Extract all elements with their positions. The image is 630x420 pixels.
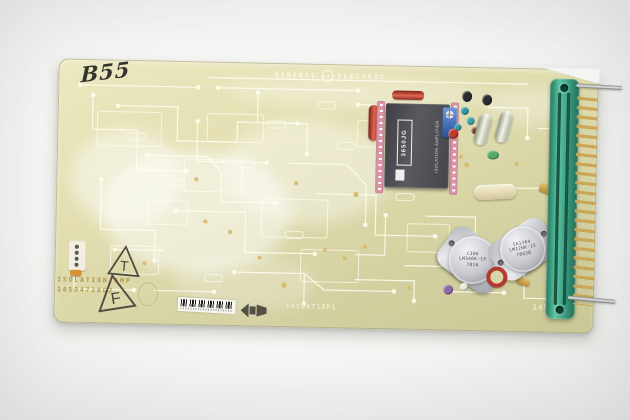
connector-screw-hole-bottom [556, 306, 564, 314]
silkscreen-part-number: 145D4718P1 [286, 302, 337, 311]
power-resistor [474, 184, 517, 201]
red-capacitor-horizontal [392, 90, 424, 100]
green-bead [487, 150, 499, 159]
pcb-substrate: B55 GENERAL GE ELECTRIC ISOLATION AMP 14… [53, 58, 598, 333]
ink-stamp [237, 299, 271, 322]
ge-monogram-icon: GE [321, 70, 333, 82]
dip-component [68, 241, 86, 271]
f-stamp: F [91, 269, 139, 317]
photo-backdrop: B55 GENERAL GE ELECTRIC ISOLATION AMP 14… [0, 0, 630, 420]
module-part-number: 3650JG [397, 119, 413, 165]
brand-text: GENERAL GE ELECTRIC [274, 69, 386, 83]
orange-jumper [70, 270, 81, 276]
brand-word-general: GENERAL [274, 71, 317, 80]
connector-screw-hole-top [560, 84, 568, 92]
f-stamp-letter: F [110, 290, 122, 308]
trimpot-screw [446, 110, 454, 118]
circuit-board: B55 GENERAL GE ELECTRIC ISOLATION AMP 14… [53, 58, 598, 333]
teal-disc-capacitor [461, 107, 469, 115]
module-logo [395, 169, 404, 180]
module-type-label: ISOLATION AMPLIFIER [433, 110, 440, 182]
regulator-left-line3: 7816 [466, 263, 478, 269]
brand-word-electric: ELECTRIC [337, 72, 386, 81]
regulator-right-line3: 7803B [516, 250, 532, 258]
connector-gold-pins [573, 96, 598, 306]
module-body: 3650JG ISOLATION AMPLIFIER [384, 103, 450, 188]
